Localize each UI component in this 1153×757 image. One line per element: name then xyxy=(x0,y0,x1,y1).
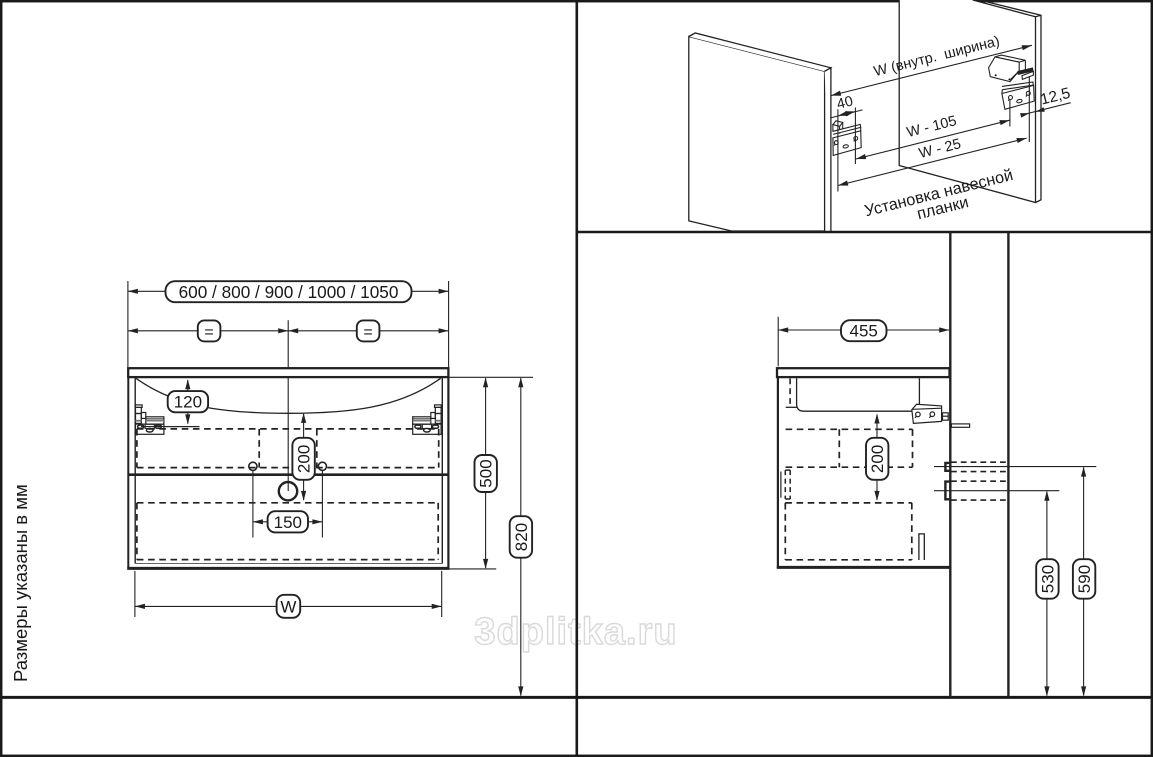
svg-text:150: 150 xyxy=(274,513,302,532)
svg-text:455: 455 xyxy=(850,322,878,341)
svg-text:=: = xyxy=(363,324,372,341)
svg-text:200: 200 xyxy=(868,445,887,473)
svg-text:200: 200 xyxy=(295,445,314,473)
svg-text:500: 500 xyxy=(477,459,496,487)
svg-text:W: W xyxy=(280,597,296,616)
svg-text:820: 820 xyxy=(512,523,531,551)
svg-text:=: = xyxy=(204,324,213,341)
svg-text:Размеры указаны в мм: Размеры указаны в мм xyxy=(10,484,31,682)
svg-text:600 / 800 / 900 / 1000 / 1050: 600 / 800 / 900 / 1000 / 1050 xyxy=(179,282,399,302)
svg-text:120: 120 xyxy=(174,393,202,412)
svg-text:590: 590 xyxy=(1075,565,1094,593)
svg-text:530: 530 xyxy=(1038,565,1057,593)
